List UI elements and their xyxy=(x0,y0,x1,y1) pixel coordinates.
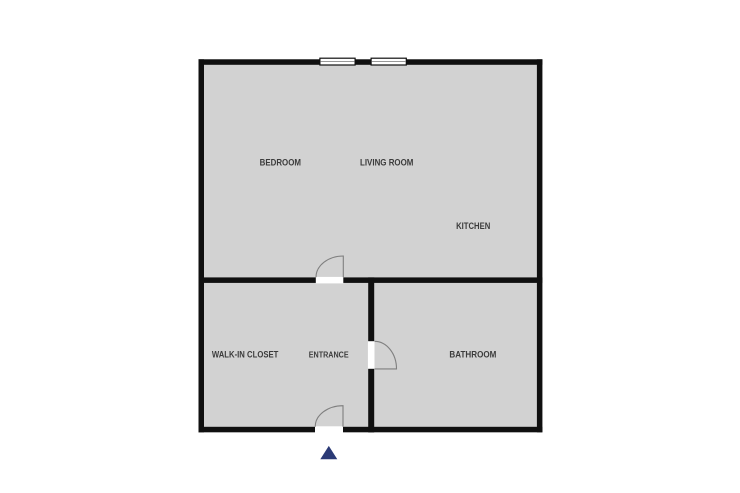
svg-text:ENTRANCE: ENTRANCE xyxy=(309,350,349,359)
svg-text:KITCHEN: KITCHEN xyxy=(456,221,490,231)
svg-text:WALK-IN CLOSET: WALK-IN CLOSET xyxy=(212,350,279,360)
svg-text:BATHROOM: BATHROOM xyxy=(449,350,496,360)
svg-text:LIVING ROOM: LIVING ROOM xyxy=(360,158,413,168)
svg-text:BEDROOM: BEDROOM xyxy=(260,158,301,168)
